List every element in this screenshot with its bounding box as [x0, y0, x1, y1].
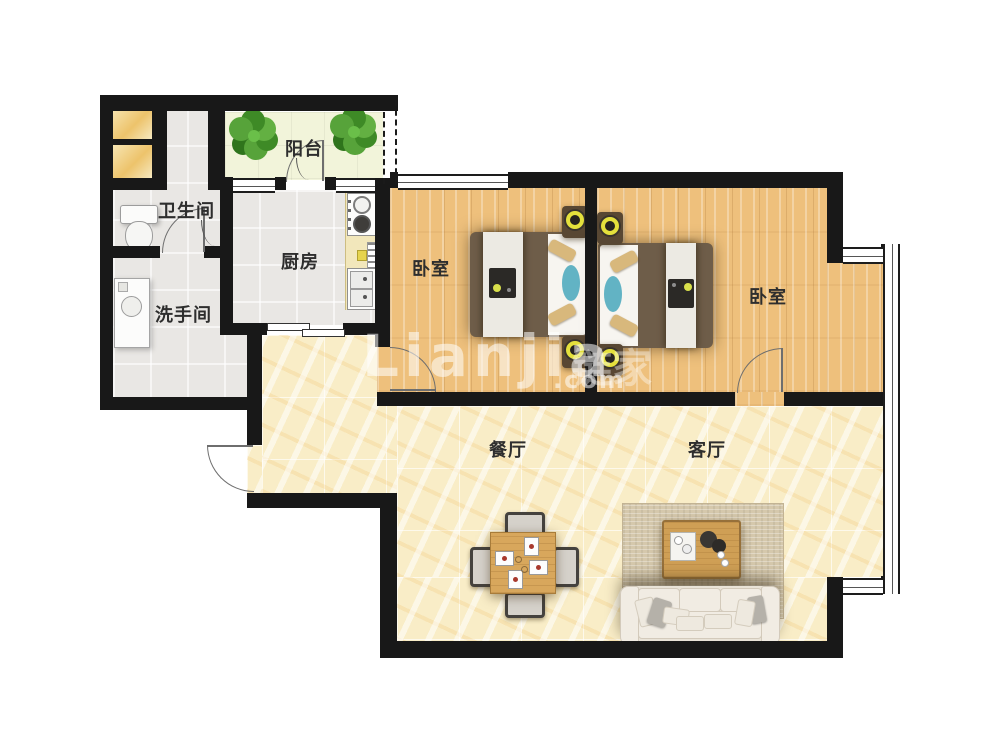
wall-shaft-divider [113, 139, 152, 145]
wall-bathroom-balcony [208, 95, 225, 190]
tea-cup-2 [721, 559, 729, 567]
placemat-left [495, 551, 514, 566]
bed1-tv-flower [493, 284, 501, 292]
balcony-jamb-left [222, 177, 233, 190]
placemat-bottom [508, 570, 523, 589]
wall-shaft-bottom [113, 178, 167, 190]
shaft-tile-top [113, 108, 152, 139]
bed2-round-cushion [604, 276, 622, 312]
bay-sill-bottom [843, 578, 883, 595]
sink-drain-top [363, 277, 367, 281]
room-label-balcony: 阳台 [285, 135, 323, 161]
sofa-lumbar-2 [704, 614, 732, 629]
vanity-soap [118, 282, 128, 292]
room-label-kitchen: 厨房 [281, 248, 319, 274]
wall-bottom [385, 641, 843, 658]
balcony-window-left [233, 178, 275, 193]
plant-right [348, 126, 360, 138]
tea-cup-1 [717, 551, 725, 559]
tray-plate-2 [682, 544, 692, 554]
balcony-open-edge-inner [383, 112, 385, 184]
wall-bath-wash-left [100, 246, 160, 258]
floor-plan: 阳台 卫生间 厨房 洗手间 卧室 卧室 餐厅 客厅 Lianjia 链家 .co… [0, 0, 1000, 750]
sink-drain-bottom [363, 295, 367, 299]
room-label-bathroom: 卫生间 [158, 197, 215, 223]
cutting-board [357, 250, 367, 261]
wall-between-bedrooms [585, 172, 597, 406]
sofa-lumbar-1 [676, 616, 704, 631]
bedroom1-door-threshold [377, 347, 390, 392]
bedroom2-door-leaf [781, 348, 783, 392]
dining-glass-2 [521, 566, 528, 573]
bedroom2-door-threshold [735, 392, 784, 406]
wall-entry-bottom [247, 493, 397, 508]
entry-door-leaf [207, 445, 253, 447]
wall-kitchen-right [375, 178, 390, 347]
wall-bath-wash-right [204, 246, 222, 258]
bay-sill-top [843, 247, 883, 264]
room-label-bedroom2: 卧室 [749, 283, 787, 309]
wall-bedrooms-top [508, 172, 843, 188]
wall-kitchen-bottom-right [343, 323, 390, 335]
room-label-washroom: 洗手间 [155, 301, 212, 327]
placemat-top [524, 537, 539, 556]
stove-knobs [348, 198, 351, 230]
bed2-tv-flower [684, 283, 692, 291]
wall-lower-left [380, 493, 397, 658]
bed2-tv-dot [672, 283, 676, 287]
bedroom2-bay-floor [827, 262, 883, 392]
bedroom1-top-window [398, 174, 508, 190]
tray-plate-1 [674, 536, 683, 545]
wall-bedroom1-bottom [377, 392, 585, 406]
wall-right-lower [827, 577, 843, 658]
dining-chair-bottom [505, 592, 545, 618]
shaft-tile-bottom [113, 145, 152, 178]
wall-entry [247, 330, 262, 445]
bed1-tv-dot [507, 288, 511, 292]
balcony-jamb-mid1 [275, 177, 286, 190]
sink-basin-top [350, 271, 373, 289]
room-label-living: 客厅 [688, 436, 726, 462]
bed2-lamp-top [601, 217, 619, 235]
placemat-right [529, 560, 548, 575]
bed1-round-cushion [562, 265, 580, 301]
entry-door-arc [207, 445, 254, 492]
bedroom1-door-leaf [390, 389, 436, 391]
bed1-tv [489, 268, 516, 298]
stove-burner-back [353, 215, 371, 233]
wall-bedroom2-bottom-right [784, 392, 897, 406]
sink-basin-bottom [350, 289, 373, 307]
wall-bedroom2-bottom-left [597, 392, 735, 406]
room-label-bedroom1: 卧室 [412, 255, 450, 281]
vanity-sink [121, 296, 142, 317]
plant-left [248, 130, 260, 142]
dining-glass-1 [515, 556, 522, 563]
bay-window-glazing [883, 244, 900, 594]
balcony-open-edge-outer [395, 100, 397, 184]
wall-right-upper [827, 172, 843, 263]
sofa-armrest-left [620, 586, 639, 645]
wall-washroom-bottom [100, 397, 262, 410]
balcony-jamb-mid2 [325, 177, 336, 190]
balcony-window-right [336, 178, 375, 193]
kitchen-sliding-door-panel-2 [302, 329, 345, 337]
wall-top [100, 95, 398, 111]
room-label-dining: 餐厅 [489, 436, 527, 462]
bed2-lamp-bottom [601, 349, 619, 367]
dining-chair-right [553, 547, 579, 587]
bed1-lamp-bottom [566, 341, 584, 359]
bed1-lamp-top [566, 211, 584, 229]
stove-burner-front [353, 196, 371, 214]
